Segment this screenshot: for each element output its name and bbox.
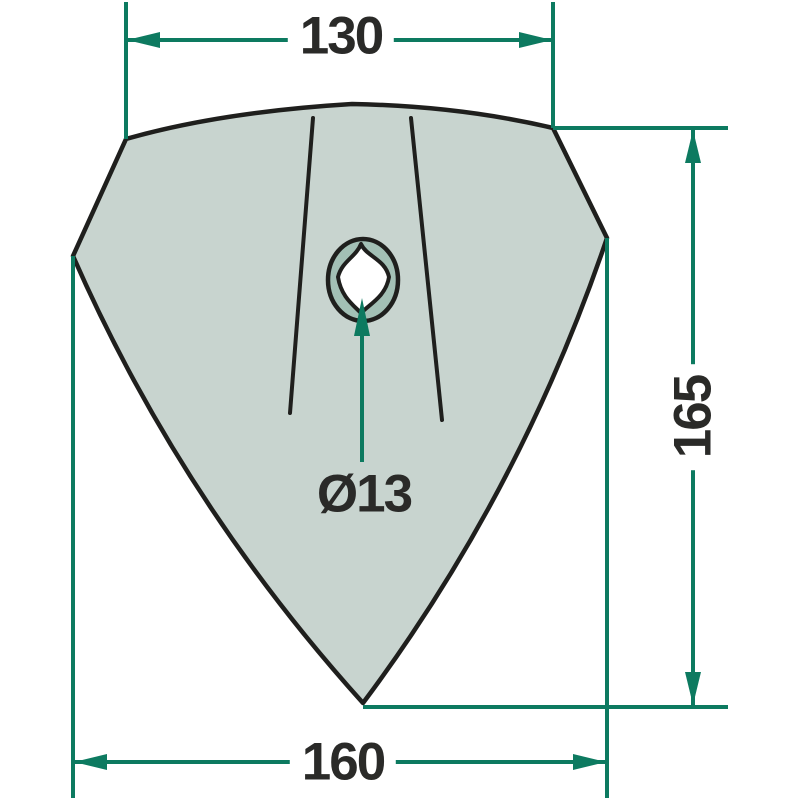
dim-arrow-130-right	[519, 32, 552, 48]
dim-arrow-160-right	[573, 754, 606, 770]
dim-arrow-160-left	[74, 754, 107, 770]
technical-drawing-canvas: 130 165 Ø13 160	[0, 0, 800, 800]
dim-arrow-165-top	[685, 130, 701, 163]
dim-label-hole-diameter: Ø13	[317, 468, 411, 521]
part-shape	[73, 104, 607, 703]
dim-arrow-130-left	[127, 32, 160, 48]
dim-label-bottom-width: 160	[290, 736, 396, 789]
dim-arrow-165-bottom	[685, 672, 701, 705]
dim-label-right-height: 165	[667, 364, 720, 470]
dim-label-top-width: 130	[288, 10, 394, 63]
